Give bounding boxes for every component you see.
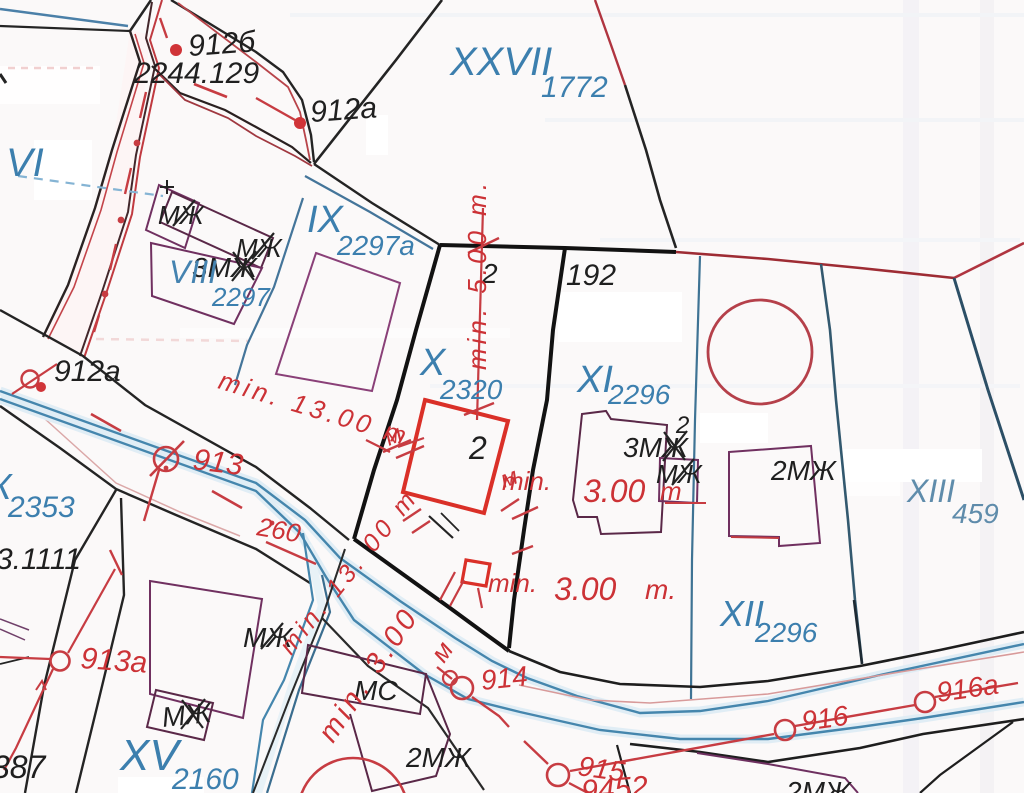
- svg-text:min.: min.: [488, 568, 537, 598]
- svg-text:1772: 1772: [541, 71, 608, 104]
- svg-text:3.00: 3.00: [583, 473, 645, 509]
- svg-text:2МЖ: 2МЖ: [770, 455, 838, 486]
- svg-text:2: 2: [468, 430, 487, 466]
- svg-text:2353: 2353: [7, 491, 75, 524]
- svg-text:912а: 912а: [309, 91, 378, 129]
- svg-text:2296: 2296: [754, 617, 818, 648]
- svg-text:9452: 9452: [580, 770, 649, 793]
- svg-text:913а: 913а: [80, 642, 149, 680]
- svg-text:VIII: VIII: [169, 254, 217, 290]
- svg-text:XXVII: XXVII: [449, 40, 552, 84]
- svg-text:459: 459: [952, 498, 999, 529]
- svg-text:916: 916: [800, 700, 851, 737]
- svg-text:2297: 2297: [211, 282, 271, 312]
- svg-text:912а: 912а: [54, 355, 121, 388]
- svg-text:3.00: 3.00: [554, 571, 616, 607]
- svg-text:m.: m.: [645, 574, 676, 605]
- svg-text:XIII: XIII: [906, 473, 955, 509]
- svg-text:m: m: [660, 476, 682, 506]
- svg-text:2296: 2296: [607, 379, 671, 410]
- svg-text:914: 914: [479, 660, 529, 696]
- svg-text:3.1111: 3.1111: [0, 543, 81, 576]
- svg-text:МЖ: МЖ: [160, 697, 214, 733]
- svg-text:913: 913: [191, 443, 245, 482]
- svg-text:2МЖ: 2МЖ: [785, 776, 853, 793]
- svg-text:192: 192: [566, 259, 616, 292]
- svg-text:2160: 2160: [171, 763, 239, 793]
- svg-text:min. 5.00 m.: min. 5.00 m.: [462, 179, 492, 370]
- svg-text:VI: VI: [6, 141, 44, 185]
- svg-text:2297а: 2297а: [336, 230, 415, 261]
- svg-text:2244.129: 2244.129: [133, 57, 259, 90]
- svg-text:387: 387: [0, 749, 47, 785]
- svg-text:2320: 2320: [439, 374, 503, 405]
- svg-text:2МЖ: 2МЖ: [405, 742, 473, 773]
